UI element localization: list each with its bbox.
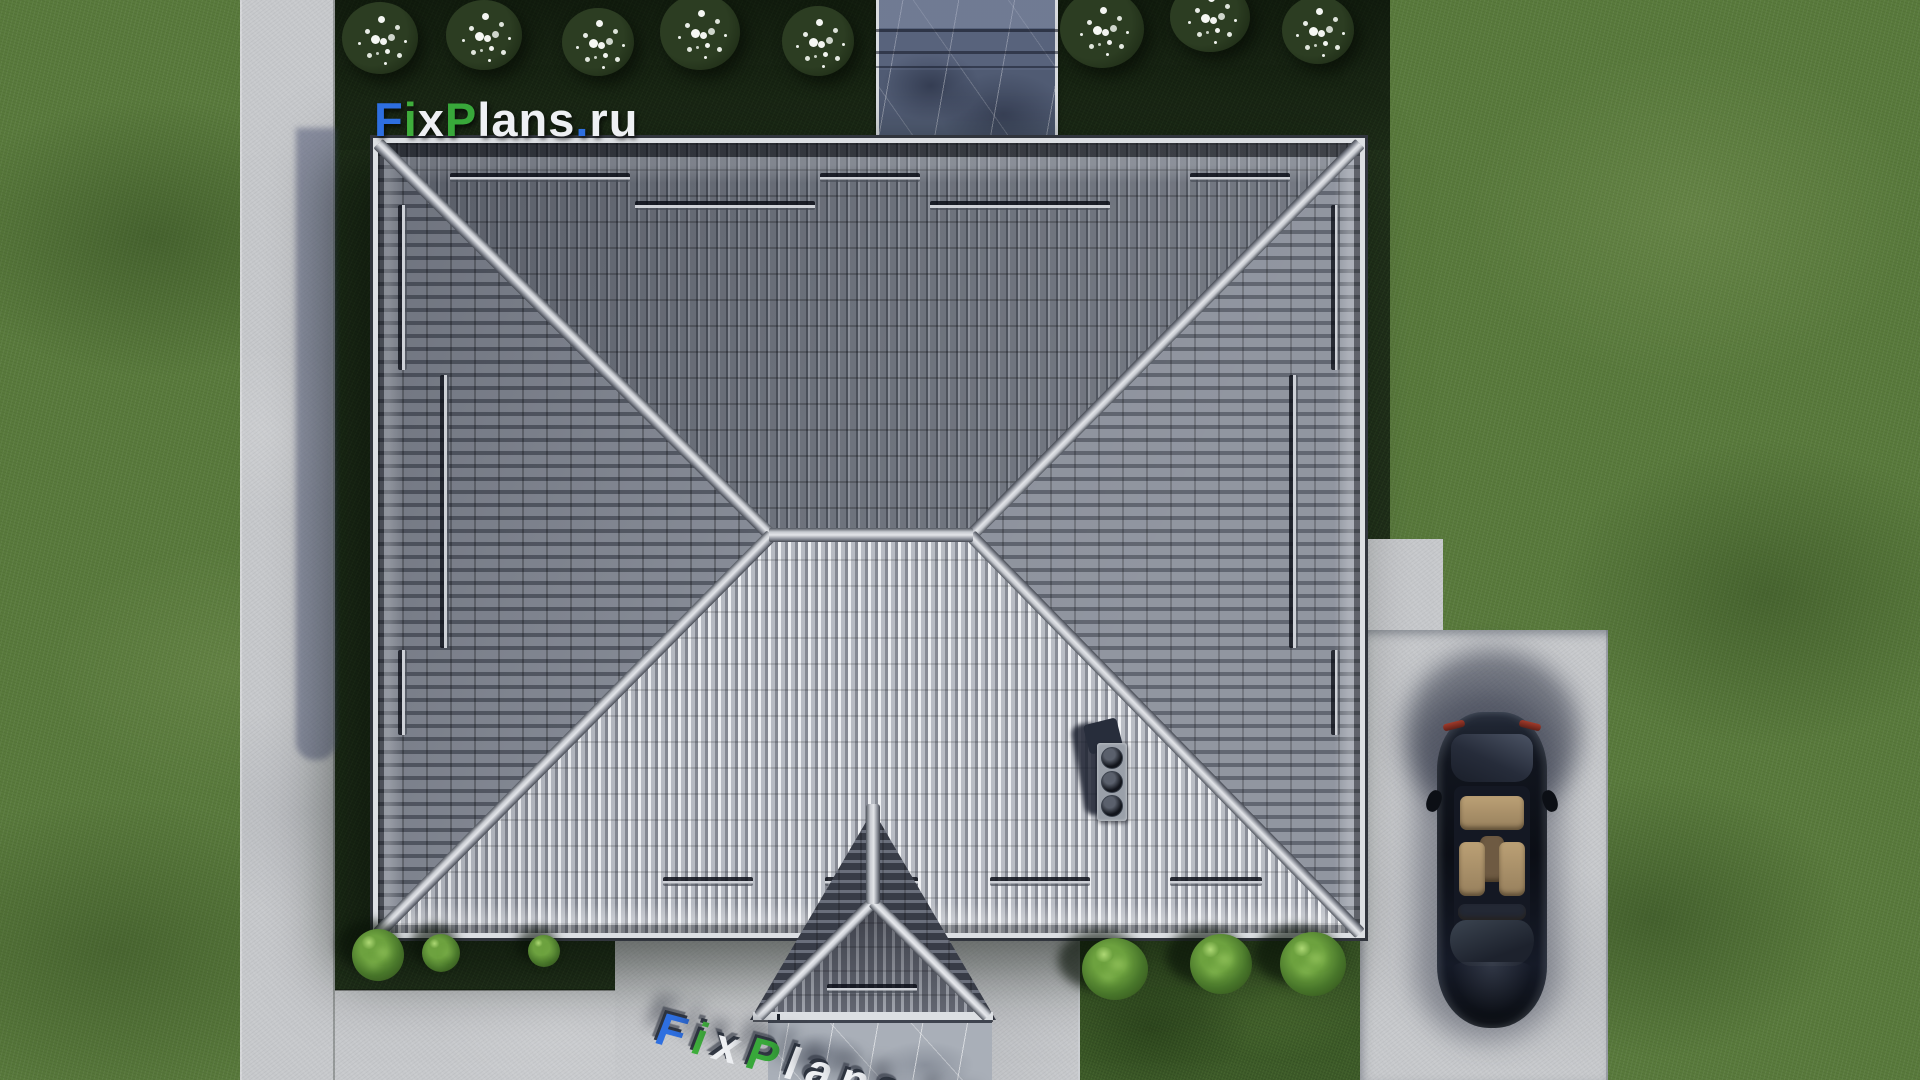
walk-seam — [876, 51, 1058, 54]
blossoms — [484, 35, 491, 42]
bush — [1082, 938, 1148, 1000]
porch-ridge — [866, 804, 880, 904]
brand-letter: a — [491, 93, 518, 146]
bush — [352, 929, 404, 981]
blossoms — [1318, 30, 1325, 37]
brand-letter: l — [477, 93, 491, 146]
flowering-shrub — [446, 0, 522, 70]
snow-rail — [398, 205, 407, 370]
brand-letter: u — [609, 93, 639, 146]
vent-pipe — [1101, 795, 1123, 817]
vent-pipe — [1101, 747, 1123, 769]
fixplans-logo: FixPlans.ru — [374, 92, 638, 147]
windshield — [1450, 920, 1534, 966]
snow-rail — [440, 375, 449, 648]
blossoms — [700, 32, 707, 39]
bush — [1280, 932, 1346, 996]
front-seat-left — [1459, 842, 1485, 896]
snow-rail — [820, 173, 920, 182]
snow-rail — [827, 984, 917, 993]
flowering-shrub — [562, 8, 634, 76]
front-seat-right — [1499, 842, 1525, 896]
flowering-shrub — [342, 2, 418, 74]
plot-bottom-edge — [335, 989, 615, 991]
snow-rail — [1289, 375, 1298, 648]
snow-rail — [635, 201, 815, 210]
bush — [422, 934, 460, 972]
snow-rail — [1170, 877, 1262, 886]
brand-letter: P — [445, 93, 477, 146]
snow-rail — [990, 877, 1090, 886]
brand-letter: F — [374, 93, 404, 146]
snow-rail — [398, 650, 407, 735]
hood-highlight — [1446, 962, 1538, 1020]
sidewalk-shadow — [296, 128, 336, 760]
snow-rail — [450, 173, 630, 182]
rear-seat — [1460, 796, 1524, 830]
porch-eave — [753, 1012, 993, 1020]
main-ridge — [769, 528, 973, 542]
blossoms — [598, 42, 605, 49]
brand-letter: i — [404, 93, 418, 146]
blossoms — [1210, 17, 1217, 24]
brand-letter: x — [418, 93, 445, 146]
snow-rail — [663, 877, 753, 886]
walk-seam — [876, 29, 1058, 32]
snow-rail — [1190, 173, 1290, 182]
vent-pipe — [1101, 771, 1123, 793]
brand-letter: . — [575, 93, 589, 146]
dashboard — [1458, 904, 1526, 920]
car — [1437, 712, 1547, 1028]
blossoms — [380, 38, 387, 45]
render-viewport: FixPlans.ru FixPlans.ru — [0, 0, 1920, 1080]
bush — [1190, 934, 1252, 994]
bush — [528, 935, 560, 967]
flowering-shrub — [782, 6, 854, 76]
brand-letter: r — [589, 93, 608, 146]
entrance-walk-top — [876, 0, 1058, 143]
snow-rail — [1331, 205, 1340, 370]
rear-window — [1451, 734, 1533, 782]
brand-letter: n — [518, 93, 548, 146]
blossoms — [818, 41, 825, 48]
blossoms — [1102, 29, 1109, 36]
chimney-vent-plate — [1097, 743, 1127, 821]
walk-seam — [876, 66, 1058, 68]
snow-rail — [1331, 650, 1340, 735]
brand-letter: s — [548, 93, 575, 146]
snow-rail — [930, 201, 1110, 210]
